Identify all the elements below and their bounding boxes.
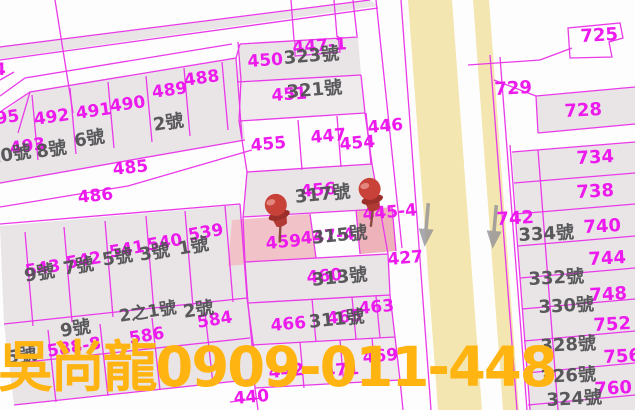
parcel-label: 488 xyxy=(183,68,221,90)
parcel-label: 485 xyxy=(112,158,149,179)
parcel-label: 447-4 xyxy=(300,226,356,248)
parcel-label: 427 xyxy=(387,249,424,269)
parcel-label: 446 xyxy=(367,117,404,137)
parcel-label: 539 xyxy=(187,222,225,245)
parcel-label: 491 xyxy=(75,101,113,123)
house-number-label: 5號 xyxy=(101,247,134,270)
parcel-label: 540 xyxy=(146,232,184,255)
parcel-label: 466 xyxy=(270,315,307,335)
parcel-label: 760 xyxy=(594,379,632,399)
house-number-label: 8號 xyxy=(35,139,68,162)
parcel-label: 725 xyxy=(580,26,618,46)
parcel-label: 486 xyxy=(77,186,114,207)
parcel-label: 447 xyxy=(310,127,347,147)
house-number-label: 321號 xyxy=(286,79,343,102)
parcel-label: 447-1 xyxy=(292,36,347,57)
parcel-label: 542 xyxy=(65,250,103,273)
parcel-label: 451 xyxy=(271,86,308,105)
house-number-label: 323號 xyxy=(283,45,340,68)
house-number-label: 332號 xyxy=(528,268,584,289)
parcel-label: 460 xyxy=(306,267,343,287)
parcel-label: 495 xyxy=(0,108,21,130)
house-number-label: 2之1號 xyxy=(118,300,178,326)
parcel-label: 493 xyxy=(9,136,47,158)
house-number-label: 6號 xyxy=(73,128,106,151)
parcel-label: 748 xyxy=(589,285,627,305)
parcel-label: 490 xyxy=(109,94,147,116)
house-number-label: 1號 xyxy=(177,236,210,259)
parcel-label: 463 xyxy=(358,298,395,318)
parcel-label: 756 xyxy=(603,347,635,367)
parcel-label: 742 xyxy=(496,209,534,229)
house-number-label: 317號 xyxy=(294,183,351,207)
house-number-label: 10號 xyxy=(0,143,32,168)
parcel-label: 744 xyxy=(588,249,626,269)
parcel-label: 728 xyxy=(564,101,602,121)
parcel-label: 489 xyxy=(151,80,189,102)
parcel-label: 738 xyxy=(576,182,614,202)
parcel-label: 729 xyxy=(494,79,532,99)
parcel-label: 543 xyxy=(24,258,62,281)
house-number-label: 3號 xyxy=(138,242,171,265)
parcel-label: 734 xyxy=(576,148,614,168)
parcel-label: 492 xyxy=(33,107,71,129)
map-canvas[interactable]: 4495493492491490489488485486450447-14514… xyxy=(0,0,635,410)
parcel-label: 584 xyxy=(196,309,234,331)
parcel-label: 450 xyxy=(247,52,284,71)
parcel-label: 456 xyxy=(300,181,337,201)
house-number-label: 313號 xyxy=(311,266,368,290)
house-number-label: 7號 xyxy=(62,256,95,279)
house-number-label: 330號 xyxy=(538,296,594,317)
parcel-label: 4 xyxy=(0,62,6,79)
parcel-label: 752 xyxy=(593,315,631,335)
watermark-text: 吳尚龍0909-011-448 xyxy=(0,334,556,400)
parcel-label: 541 xyxy=(108,239,146,262)
parcel-label: 465 xyxy=(326,308,363,328)
house-number-label: 9號 xyxy=(23,263,56,286)
house-number-label: 2號 xyxy=(182,299,215,322)
house-number-label: 2號 xyxy=(152,112,185,135)
parcel-label: 455 xyxy=(250,135,287,155)
parcel-label: 740 xyxy=(583,217,621,237)
parcel-label: 454 xyxy=(339,134,376,154)
house-number-label: 334號 xyxy=(518,224,574,245)
house-number-label: 311號 xyxy=(308,308,365,332)
house-number-label: 315號 xyxy=(311,224,368,248)
